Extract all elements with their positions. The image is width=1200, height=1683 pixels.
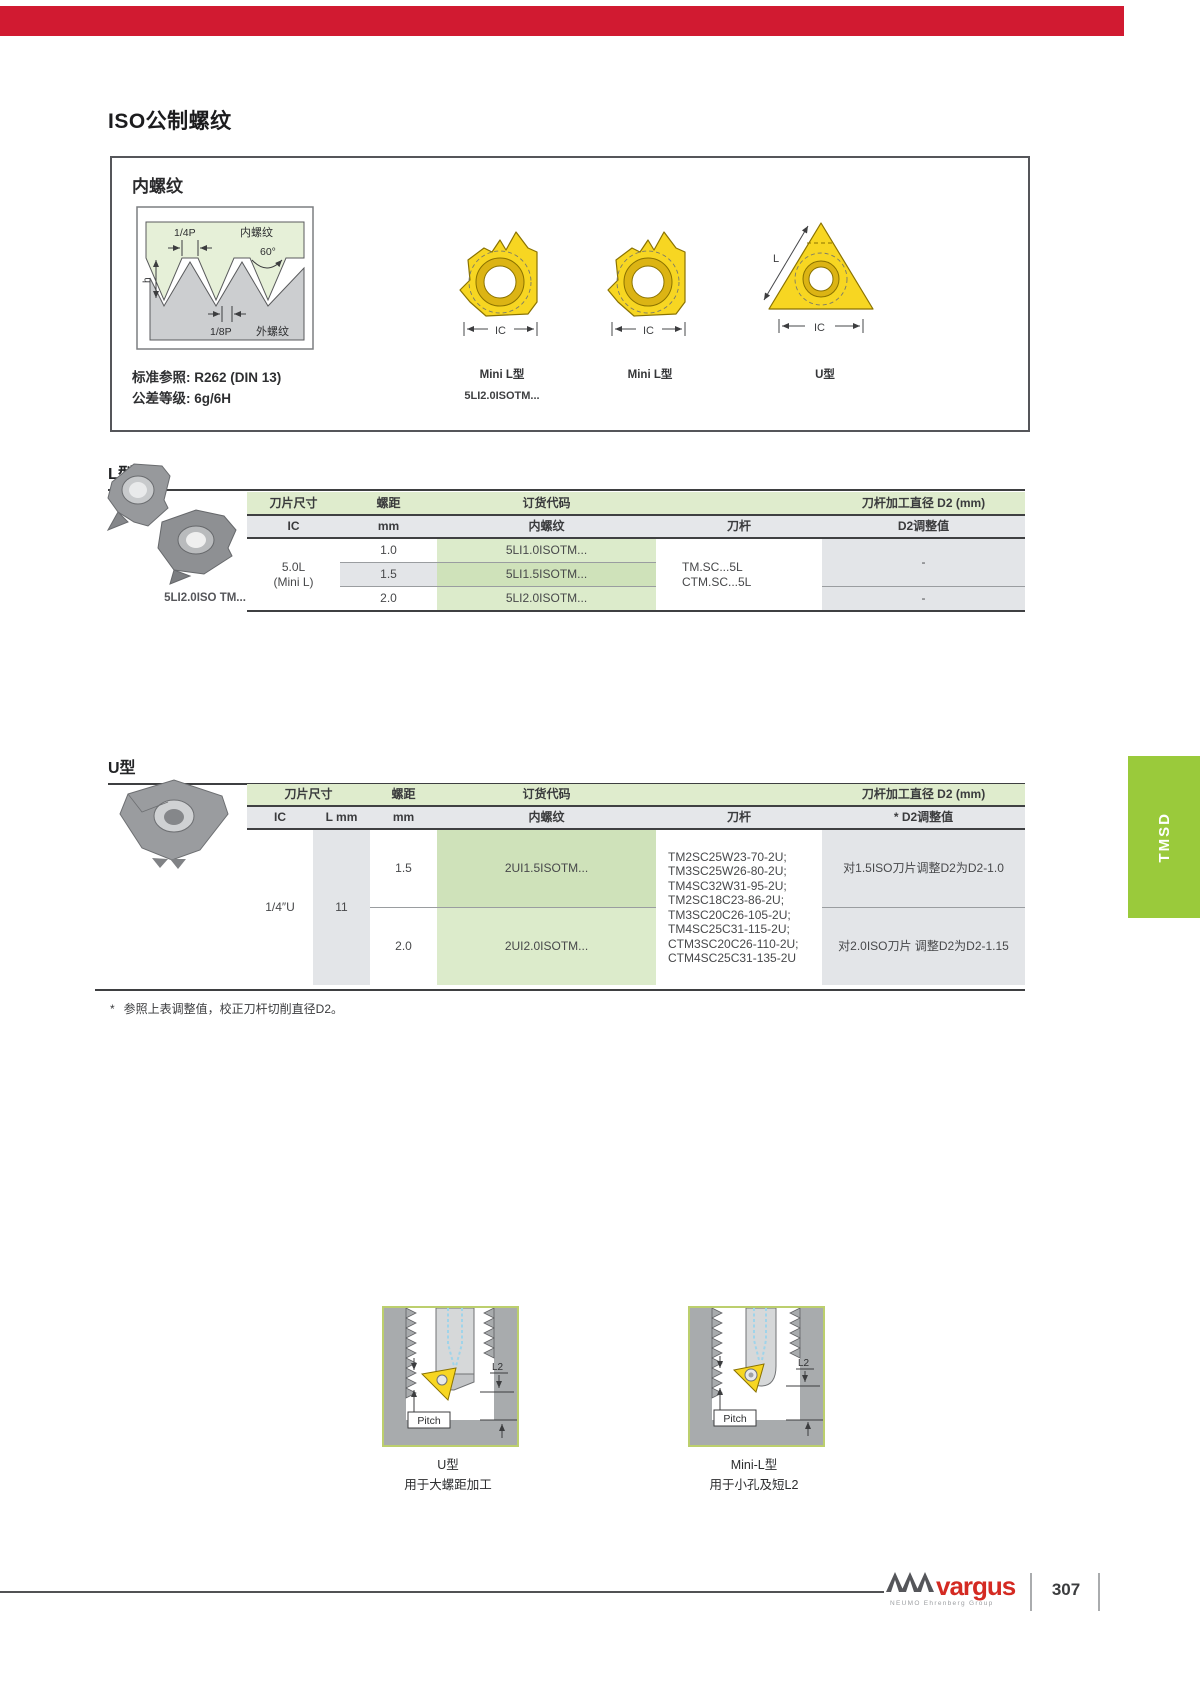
insert-size-cell: 5.0L (Mini L) [247, 538, 340, 611]
footnote-mark: * [110, 1002, 115, 1016]
subheader-ic: IC [247, 806, 313, 829]
footnote: *参照上表调整值，校正刀杆切削直径D2。 [110, 1000, 343, 1017]
pitch-cell: 1.5 [370, 829, 437, 907]
pitch-label: Pitch [417, 1415, 441, 1427]
insert-code: 5LI2.0ISOTM... [442, 390, 562, 402]
table-row: 2.0 5LI2.0ISOTM... - [247, 586, 1025, 611]
col-header-pitch: 螺距 [370, 784, 437, 806]
figure-name: U型 [368, 1454, 528, 1473]
ic-dimension-label: IC [643, 325, 654, 337]
standard-reference: 标准参照: R262 (DIN 13) [132, 366, 281, 386]
footer-divider [1030, 1573, 1032, 1611]
order-code-cell: 5LI1.5ISOTM... [437, 562, 656, 586]
insert-caption: U型 [765, 366, 885, 382]
col-header-empty [656, 784, 822, 806]
subheader-d2-adjust: D2调整值 [822, 515, 1025, 538]
subheader-internal-thread: 内螺纹 [437, 515, 656, 538]
table-bottom-rule [95, 989, 1025, 991]
l-insert-photo [104, 452, 249, 592]
page-title: ISO公制螺纹 [108, 105, 232, 135]
ic-dimension-label: IC [495, 325, 506, 337]
subheader-mm: mm [340, 515, 437, 538]
d2-adjust-cell: - [822, 538, 1025, 586]
thread-height-label: h [142, 277, 153, 283]
u-section-heading: U型 [108, 754, 1025, 785]
thread-profile-diagram: 1/4P 内螺纹 60° h 1/8P 外螺纹 [136, 206, 314, 350]
figure-mini-l-drawing: Pitch L2 [690, 1308, 823, 1445]
l-table-subheader-row: IC mm 内螺纹 刀杆 D2调整值 [247, 515, 1025, 538]
l-table-header-row: 刀片尺寸 螺距 订货代码 刀杆加工直径 D2 (mm) [247, 492, 1025, 515]
brand-name: vargus [936, 1571, 1016, 1601]
figure-description: 用于小孔及短L2 [674, 1474, 834, 1493]
logo-peak-icon [916, 1572, 934, 1592]
pitch-cell: 2.0 [370, 907, 437, 985]
ic-value-cell: 1/4″U [247, 829, 313, 985]
d2-adjust-cell: 对1.5ISO刀片调整D2为D2-1.0 [822, 829, 1025, 907]
ic-dimension-label: IC [814, 322, 825, 334]
col-header-order-code: 订货代码 [437, 784, 656, 806]
col-header-insert-size: 刀片尺寸 [247, 784, 370, 806]
u-table-header-row: 刀片尺寸 螺距 订货代码 刀杆加工直径 D2 (mm) [247, 784, 1025, 806]
figure-mini-l-type: Pitch L2 [688, 1306, 825, 1447]
d2-adjust-cell: - [822, 586, 1025, 611]
table-row: 5.0L (Mini L) 1.0 5LI1.0ISOTM... TM.SC..… [247, 538, 1025, 562]
insert-drawing-u: L IC [757, 213, 885, 348]
eighth-pitch-label: 1/8P [210, 326, 232, 338]
figure-u-type-drawing: Pitch L2 [384, 1308, 517, 1445]
footer-rule [0, 1591, 884, 1593]
insert-drawing-mini-l-1: IC [454, 226, 550, 348]
l-type-table: 刀片尺寸 螺距 订货代码 刀杆加工直径 D2 (mm) IC mm 内螺纹 刀杆… [247, 492, 1025, 612]
u-insert-photo [108, 772, 243, 872]
subheader-mm: mm [370, 806, 437, 829]
subheader-ic: IC [247, 515, 340, 538]
col-header-empty [656, 492, 822, 515]
quarter-pitch-label: 1/4P [174, 227, 196, 239]
u-type-table: 刀片尺寸 螺距 订货代码 刀杆加工直径 D2 (mm) IC L mm mm 内… [247, 784, 1025, 985]
order-code-cell: 5LI1.0ISOTM... [437, 538, 656, 562]
col-header-pitch: 螺距 [340, 492, 437, 515]
tolerance-class: 公差等级: 6g/6H [132, 387, 231, 407]
pitch-cell: 1.0 [340, 538, 437, 562]
col-header-order-code: 订货代码 [437, 492, 656, 515]
col-header-shank-d2: 刀杆加工直径 D2 (mm) [822, 492, 1025, 515]
logo-peak-icon [901, 1572, 919, 1592]
angle-label: 60° [260, 246, 276, 258]
pitch-cell: 2.0 [340, 586, 437, 611]
vargus-logo: vargus NEUMO Ehrenberg Group [886, 1566, 1028, 1612]
order-code-cell: 2UI1.5ISOTM... [437, 829, 656, 907]
col-header-insert-size: 刀片尺寸 [247, 492, 340, 515]
l-dimension-label: L [773, 253, 779, 265]
d2-adjust-cell: 对2.0ISO刀片 调整D2为D2-1.15 [822, 907, 1025, 985]
order-code-cell: 2UI2.0ISOTM... [437, 907, 656, 985]
shank-codes-cell: TM.SC...5L CTM.SC...5L [656, 538, 822, 611]
insert-caption: Mini L型 [590, 366, 710, 382]
subheader-d2-adjust: * D2调整值 [822, 806, 1025, 829]
top-red-bar [0, 6, 1124, 36]
table-row: 1/4″U 11 1.5 2UI1.5ISOTM... TM2SC25W23-7… [247, 829, 1025, 907]
external-thread-label: 外螺纹 [256, 324, 289, 338]
figure-name: Mini-L型 [674, 1454, 834, 1473]
l2-label: L2 [492, 1362, 504, 1373]
order-code-cell: 5LI2.0ISOTM... [437, 586, 656, 611]
figure-u-type: Pitch L2 [382, 1306, 519, 1447]
u-table-subheader-row: IC L mm mm 内螺纹 刀杆 * D2调整值 [247, 806, 1025, 829]
catalog-page: ISO公制螺纹 内螺纹 1/4P 内螺纹 60° h 1/8P 外螺纹 [0, 0, 1200, 1683]
intro-heading: 内螺纹 [132, 172, 183, 197]
internal-thread-label: 内螺纹 [240, 225, 273, 239]
subheader-shank: 刀杆 [656, 806, 822, 829]
subheader-shank: 刀杆 [656, 515, 822, 538]
insert-caption: Mini L型 [442, 366, 562, 382]
pitch-cell: 1.5 [340, 562, 437, 586]
subheader-l: L mm [313, 806, 370, 829]
l2-label: L2 [798, 1358, 810, 1369]
insert-drawing-mini-l-2: IC [602, 226, 698, 348]
side-tab-tmsd: TMSD [1128, 756, 1200, 918]
subheader-internal-thread: 内螺纹 [437, 806, 656, 829]
figure-description: 用于大螺距加工 [368, 1474, 528, 1493]
l-value-cell: 11 [313, 829, 370, 985]
page-number: 307 [1038, 1580, 1094, 1600]
logo-peak-icon [886, 1572, 904, 1592]
internal-thread-overview-box: 内螺纹 1/4P 内螺纹 60° h 1/8P 外螺纹 标准参照: R262 [110, 156, 1030, 432]
brand-subtitle: NEUMO Ehrenberg Group [890, 1600, 994, 1607]
footer-divider [1098, 1573, 1100, 1611]
shank-codes-cell: TM2SC25W23-70-2U; TM3SC25W26-80-2U; TM4S… [656, 829, 822, 985]
col-header-shank-d2: 刀杆加工直径 D2 (mm) [822, 784, 1025, 806]
pitch-label: Pitch [723, 1413, 747, 1425]
